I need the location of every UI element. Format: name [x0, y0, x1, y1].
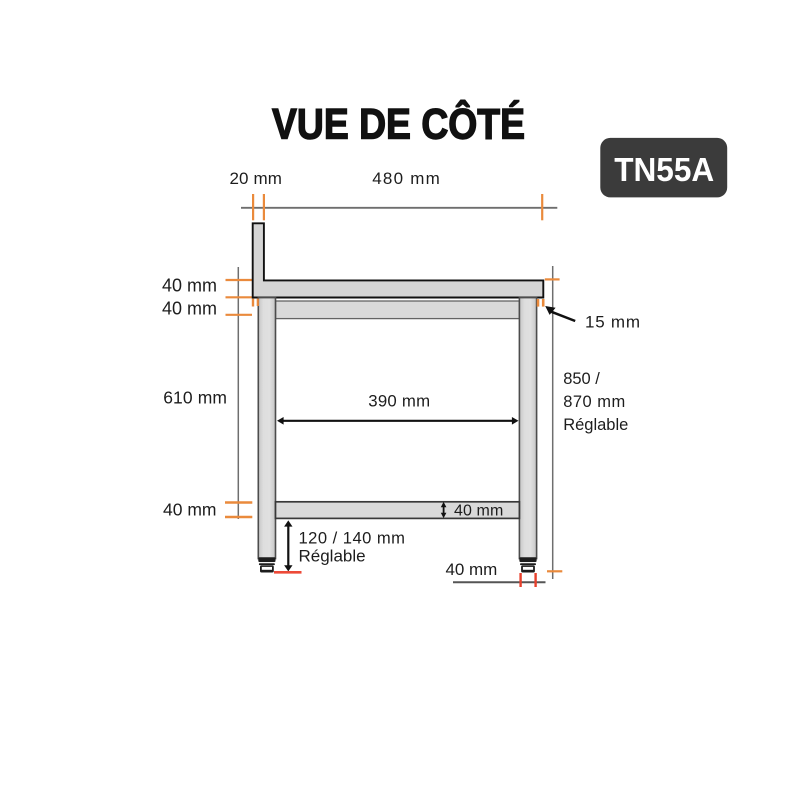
svg-text:870 mm: 870 mm: [563, 393, 625, 411]
svg-text:VUE DE CÔTÉ: VUE DE CÔTÉ: [272, 100, 525, 149]
svg-text:120 / 140 mm: 120 / 140 mm: [299, 528, 406, 547]
svg-text:Réglable: Réglable: [299, 546, 366, 565]
svg-text:480 mm: 480 mm: [372, 169, 440, 188]
svg-text:40 mm: 40 mm: [454, 503, 503, 520]
svg-text:40 mm: 40 mm: [446, 560, 498, 579]
svg-text:610 mm: 610 mm: [163, 387, 227, 407]
svg-text:Réglable: Réglable: [563, 416, 628, 434]
svg-text:20 mm: 20 mm: [229, 169, 282, 188]
svg-text:15 mm: 15 mm: [585, 313, 640, 332]
svg-text:40 mm: 40 mm: [162, 276, 217, 296]
svg-text:40 mm: 40 mm: [162, 299, 217, 319]
svg-text:40 mm: 40 mm: [163, 500, 216, 520]
svg-text:850 /: 850 /: [563, 370, 600, 388]
svg-text:390 mm: 390 mm: [368, 392, 430, 411]
svg-text:TN55A: TN55A: [614, 152, 714, 189]
